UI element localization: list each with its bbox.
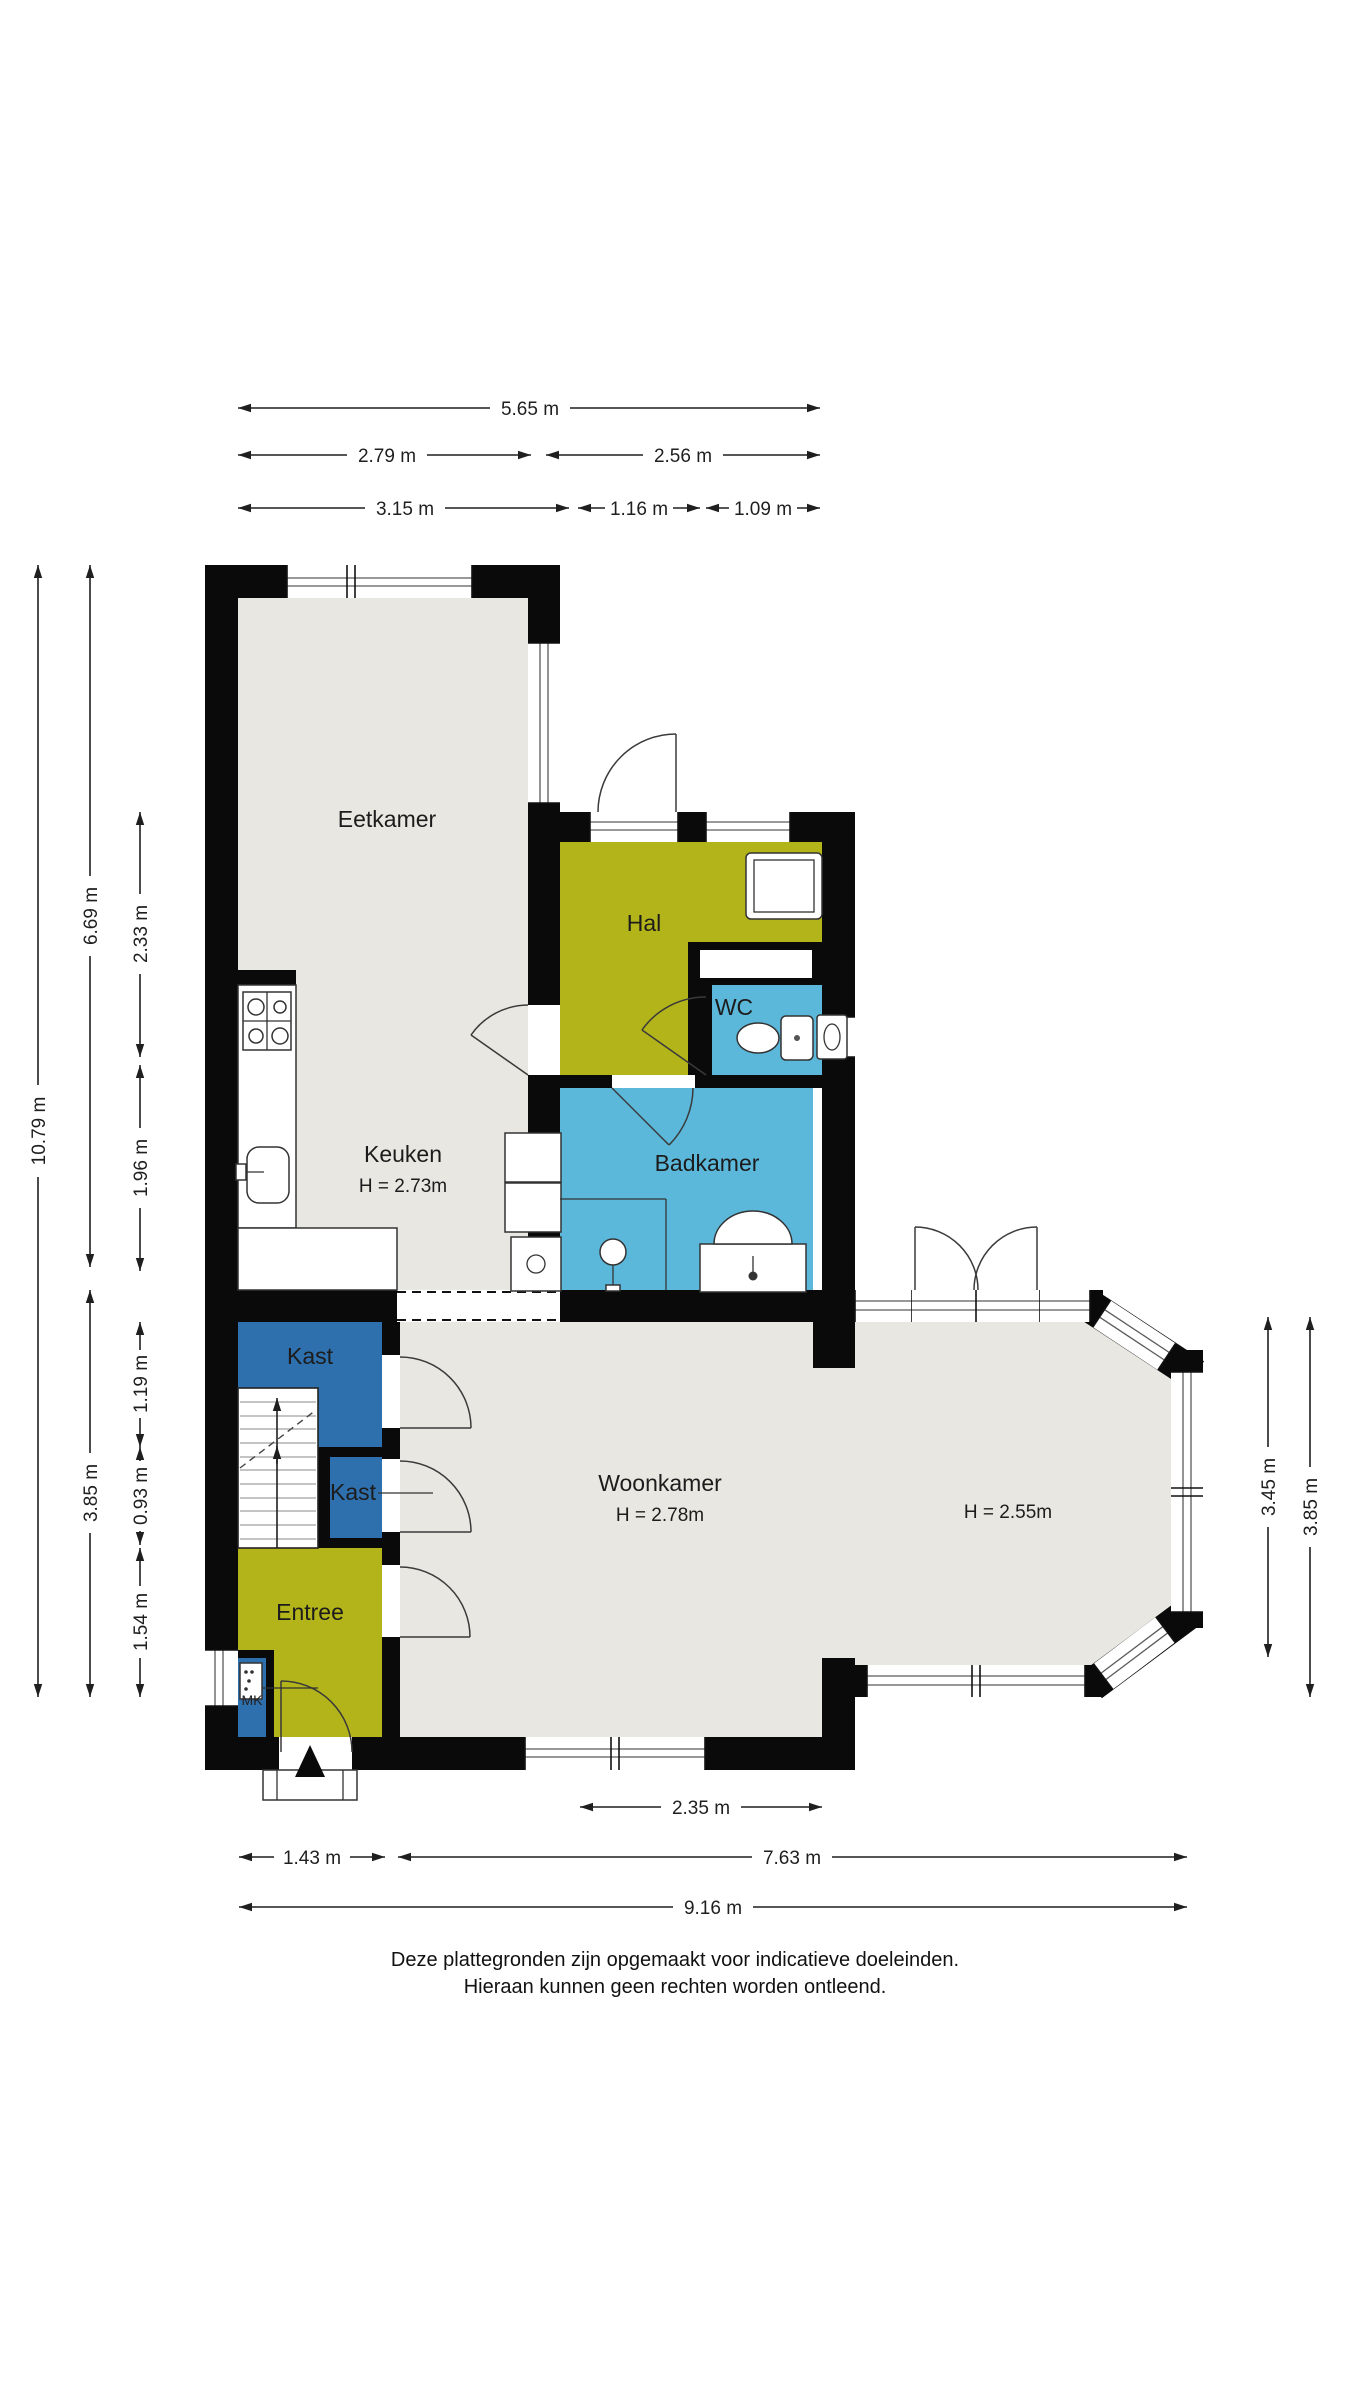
label-woonkamer-height: H = 2.78m: [616, 1505, 704, 1526]
label-woonkamer-height-erker: H = 2.55m: [964, 1502, 1052, 1523]
dim-right-outer: 3.85 m: [1301, 1478, 1322, 1536]
window-woonkamer-top-a: [855, 1290, 912, 1322]
floor-plan: Eetkamer Hal WC Keuken H = 2.73m Badkame…: [0, 0, 1350, 2400]
window-bay-south: [867, 1665, 1085, 1697]
window-hal-top: [706, 812, 790, 842]
dim-bottom-left: 1.43 m: [283, 1848, 341, 1869]
wc-basin: [817, 1015, 847, 1059]
french-door-left: [915, 1227, 978, 1290]
dim-left-upper: 6.69 m: [81, 887, 102, 945]
dimensions-bottom: 2.35 m 1.43 m 7.63 m 9.16 m: [239, 1798, 1187, 1919]
dimensions-top: 5.65 m 2.79 m 2.56 m 3.15 m 1.16 m 1.09 …: [238, 399, 820, 520]
door-hal-back: [598, 734, 676, 812]
label-woonkamer: Woonkamer: [598, 1470, 722, 1496]
french-door-opening: [912, 1290, 1040, 1322]
dim-right-inner: 3.45 m: [1259, 1458, 1280, 1516]
label-kast-boven: Kast: [287, 1343, 334, 1369]
room-hal-corridor: [560, 985, 688, 1075]
disclaimer-line2: Hieraan kunnen geen rechten worden ontle…: [464, 1976, 887, 1998]
hal-cabinet: [746, 853, 822, 919]
dimensions-left: 10.79 m 6.69 m 3.85 m 2.33 m 1.96 m 1.19…: [29, 565, 152, 1697]
window-woonkamer-bottom: [525, 1737, 705, 1770]
window-eetkamer-right: [528, 643, 560, 803]
dim-left-lower: 3.85 m: [81, 1464, 102, 1522]
label-badkamer: Badkamer: [655, 1150, 760, 1176]
label-keuken: Keuken: [364, 1141, 442, 1167]
disclaimer-line1: Deze plattegronden zijn opgemaakt voor i…: [391, 1949, 959, 1971]
window-woonkamer-top-b: [1040, 1290, 1090, 1322]
dim-left-seg5: 1.54 m: [131, 1593, 152, 1651]
label-keuken-height: H = 2.73m: [359, 1176, 447, 1197]
dim-top-row2-right: 2.56 m: [654, 446, 712, 467]
dim-top-row3-mid: 1.16 m: [610, 499, 668, 520]
counter-return: [238, 1228, 397, 1290]
stove: [243, 992, 291, 1050]
page: { "rooms": { "eetkamer": {"label": "Eetk…: [0, 0, 1350, 2400]
window-bay-east: [1171, 1372, 1203, 1612]
dim-bottom-right: 7.63 m: [763, 1848, 821, 1869]
french-door-right: [974, 1227, 1037, 1290]
label-meterkast: MK: [242, 1692, 264, 1708]
dim-left-seg4: 0.93 m: [131, 1467, 152, 1525]
label-kast-onder: Kast: [330, 1479, 377, 1505]
label-wc: WC: [715, 994, 753, 1020]
dim-bottom-bay: 2.35 m: [672, 1798, 730, 1819]
dim-top-total: 5.65 m: [501, 399, 559, 420]
dim-left-seg3: 1.19 m: [131, 1355, 152, 1413]
window-meterkast-left: [205, 1650, 238, 1706]
label-hal: Hal: [627, 910, 662, 936]
label-entree: Entree: [276, 1599, 344, 1625]
label-eetkamer: Eetkamer: [338, 806, 437, 832]
dim-left-seg1: 2.33 m: [131, 905, 152, 963]
dim-left-seg2: 1.96 m: [131, 1139, 152, 1197]
washing-machine: [511, 1237, 561, 1291]
dim-top-row2-left: 2.79 m: [358, 446, 416, 467]
window-eetkamer-top: [287, 565, 472, 598]
stairs: [238, 1388, 318, 1548]
dim-top-row3-left: 3.15 m: [376, 499, 434, 520]
kitchen-appliances: [505, 1133, 561, 1291]
dim-left-total: 10.79 m: [29, 1097, 50, 1166]
dim-bottom-total: 9.16 m: [684, 1898, 742, 1919]
door-hal-back-glazed: [590, 812, 678, 842]
dimensions-right: 3.45 m 3.85 m: [1259, 1317, 1322, 1697]
dim-top-row3-right: 1.09 m: [734, 499, 792, 520]
disclaimer: Deze plattegronden zijn opgemaakt voor i…: [391, 1949, 959, 1998]
